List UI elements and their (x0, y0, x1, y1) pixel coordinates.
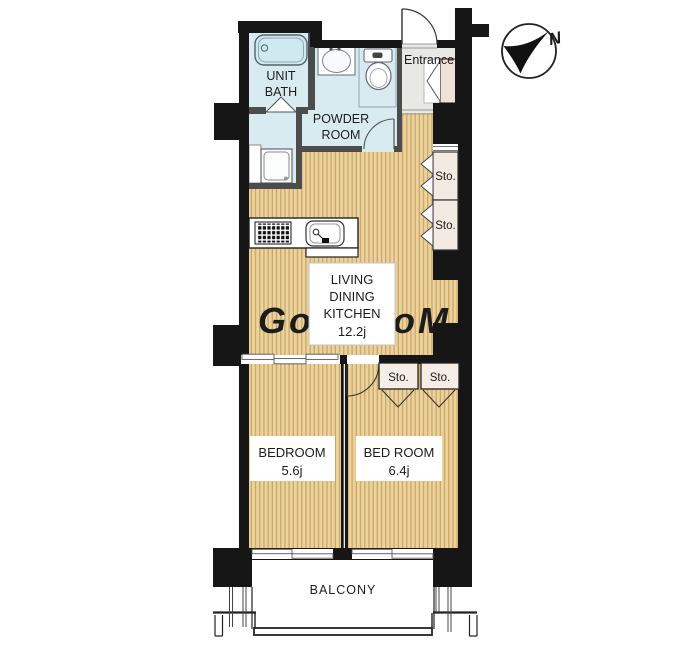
bedroom-left-label: BEDROOM (258, 445, 325, 460)
balcony-label: BALCONY (310, 583, 377, 597)
ldk-sto-upper-label: Sto. (435, 171, 455, 183)
bedroom-right-window (352, 549, 433, 559)
bedroom-right-size: 6.4j (389, 463, 410, 478)
ldk-label-3: KITCHEN (323, 306, 380, 321)
stove-icon (255, 222, 291, 244)
vanity-sink-icon (318, 44, 355, 75)
unit-bath-label-2: BATH (265, 85, 297, 99)
bedroom-left-window (252, 549, 333, 559)
powder-room-label-1: POWDER (313, 112, 369, 126)
bedroom-left-size: 5.6j (282, 463, 303, 478)
bedroom-sto-right-label: Sto. (430, 372, 450, 384)
washing-machine-icon (249, 145, 292, 183)
entrance-label: Entrance (404, 53, 454, 67)
kitchen-sink-icon (306, 221, 344, 246)
bedroom-right-label: BED ROOM (364, 445, 435, 460)
bedroom-sto-left-label: Sto. (388, 372, 408, 384)
floor-plan: GooRooM (0, 0, 700, 650)
floor-plan-canvas: GooRooM (0, 0, 700, 650)
ldk-label-1: LIVING (331, 272, 374, 287)
ldk-bedroom-sliding-door (241, 354, 340, 364)
bathtub-icon (255, 35, 307, 65)
unit-bath-label-1: UNIT (266, 69, 296, 83)
ldk-label-2: DINING (329, 289, 375, 304)
ldk-sto-lower-label: Sto. (435, 220, 455, 232)
ldk-size: 12.2j (338, 324, 366, 339)
powder-room-label-2: ROOM (322, 128, 361, 142)
bedroom-divider-core (344, 364, 345, 548)
